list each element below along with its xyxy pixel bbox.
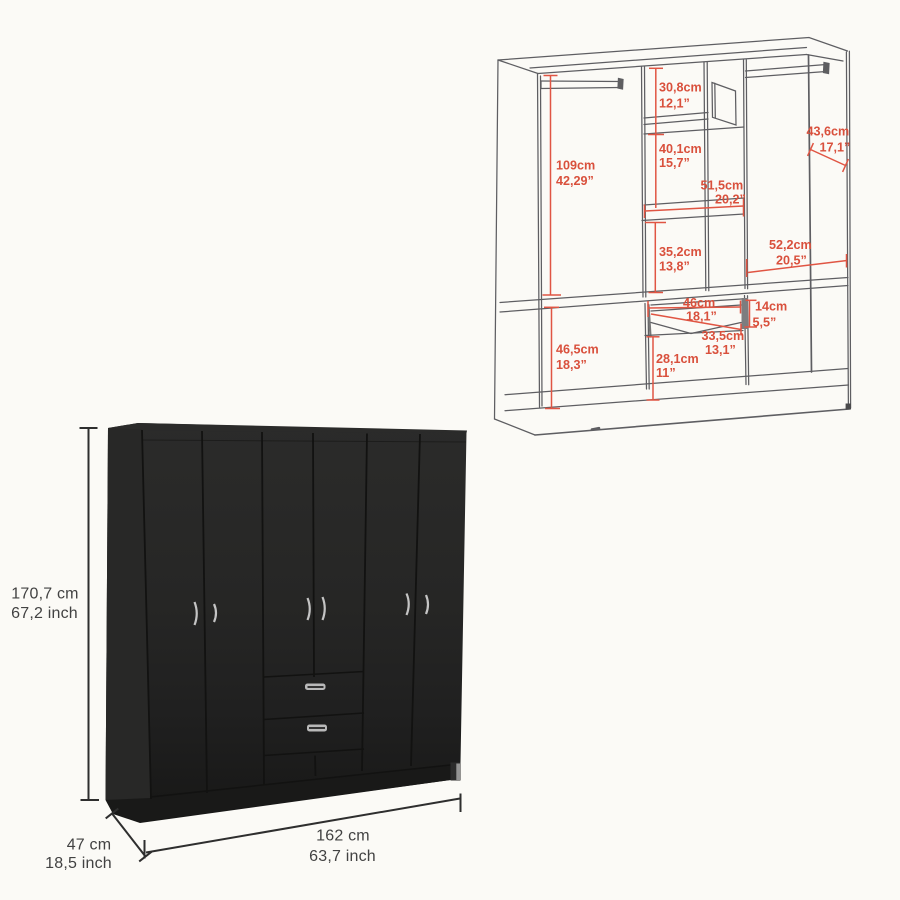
svg-text:51,5cm: 51,5cm (701, 179, 744, 193)
svg-text:52,2cm: 52,2cm (769, 238, 812, 252)
svg-text:42,29”: 42,29” (556, 174, 594, 188)
svg-text:11”: 11” (656, 366, 676, 380)
svg-text:30,8cm: 30,8cm (659, 81, 702, 95)
svg-text:40,1cm: 40,1cm (659, 142, 702, 156)
svg-text:14cm: 14cm (755, 300, 787, 314)
svg-text:13,1”: 13,1” (705, 343, 736, 357)
svg-text:18,1”: 18,1” (686, 310, 717, 324)
svg-text:46cm: 46cm (683, 296, 715, 310)
svg-text:18,3”: 18,3” (556, 358, 587, 372)
svg-text:109cm: 109cm (556, 159, 595, 173)
svg-text:13,8”: 13,8” (659, 260, 690, 274)
svg-text:63,7 inch: 63,7 inch (309, 848, 376, 865)
svg-text:33,5cm: 33,5cm (702, 329, 745, 343)
svg-text:46,5cm: 46,5cm (556, 343, 599, 357)
svg-text:67,2 inch: 67,2 inch (11, 605, 78, 622)
svg-text:47 cm: 47 cm (67, 837, 112, 854)
svg-text:17,1”: 17,1” (820, 141, 851, 155)
svg-text:28,1cm: 28,1cm (656, 352, 699, 366)
svg-text:20,2”: 20,2” (715, 193, 746, 207)
svg-text:15,7”: 15,7” (659, 156, 690, 170)
svg-text:43,6cm: 43,6cm (807, 125, 850, 139)
svg-text:20,5”: 20,5” (776, 254, 807, 268)
svg-text:18,5 inch: 18,5 inch (45, 855, 112, 872)
svg-text:35,2cm: 35,2cm (659, 245, 702, 259)
svg-text:162 cm: 162 cm (316, 828, 370, 845)
svg-text:170,7 cm: 170,7 cm (11, 586, 78, 603)
svg-text:5,5”: 5,5” (753, 316, 777, 330)
svg-text:12,1”: 12,1” (659, 97, 690, 111)
